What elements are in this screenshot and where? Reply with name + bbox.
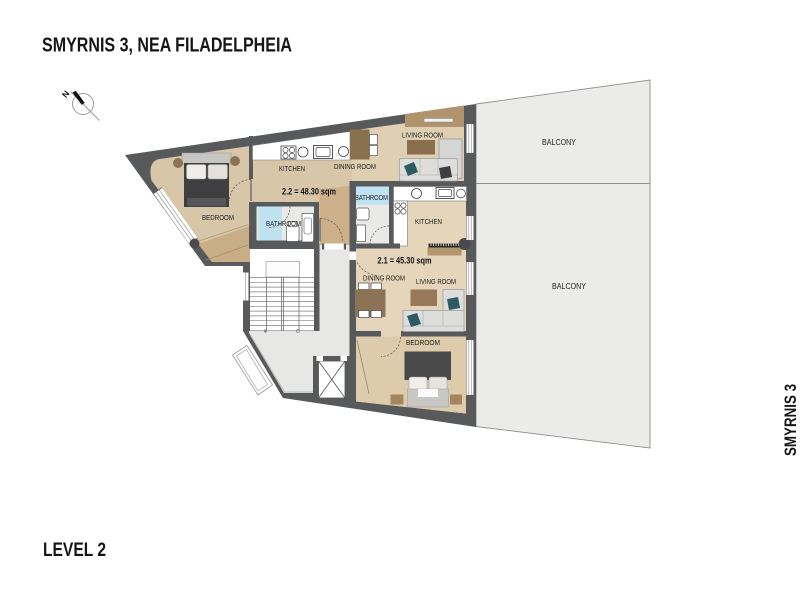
svg-text:DINING ROOM: DINING ROOM	[334, 164, 376, 171]
svg-text:2.1 = 45.30 sqm: 2.1 = 45.30 sqm	[378, 255, 432, 265]
svg-text:2.2 = 48.30 sqm: 2.2 = 48.30 sqm	[282, 186, 336, 196]
svg-text:BATHROOM: BATHROOM	[266, 221, 301, 228]
svg-text:BEDROOM: BEDROOM	[406, 340, 440, 347]
svg-text:BEDROOM: BEDROOM	[202, 215, 234, 222]
svg-text:LIVING ROOM: LIVING ROOM	[402, 133, 443, 140]
svg-text:DINING ROOM: DINING ROOM	[363, 275, 405, 282]
svg-text:SMYRNIS 3, NEA FILADELPHEIA: SMYRNIS 3, NEA FILADELPHEIA	[42, 34, 292, 57]
svg-text:LEVEL 2: LEVEL 2	[43, 539, 106, 561]
svg-text:SMYRNIS 3: SMYRNIS 3	[782, 384, 800, 456]
svg-text:N: N	[60, 89, 72, 100]
svg-text:BALCONY: BALCONY	[542, 138, 577, 147]
svg-text:BATHROOM: BATHROOM	[355, 195, 388, 202]
svg-text:KITCHEN: KITCHEN	[415, 219, 442, 226]
svg-text:LIVING ROOM: LIVING ROOM	[416, 279, 456, 286]
svg-text:BALCONY: BALCONY	[552, 282, 587, 291]
svg-text:KITCHEN: KITCHEN	[279, 166, 305, 173]
